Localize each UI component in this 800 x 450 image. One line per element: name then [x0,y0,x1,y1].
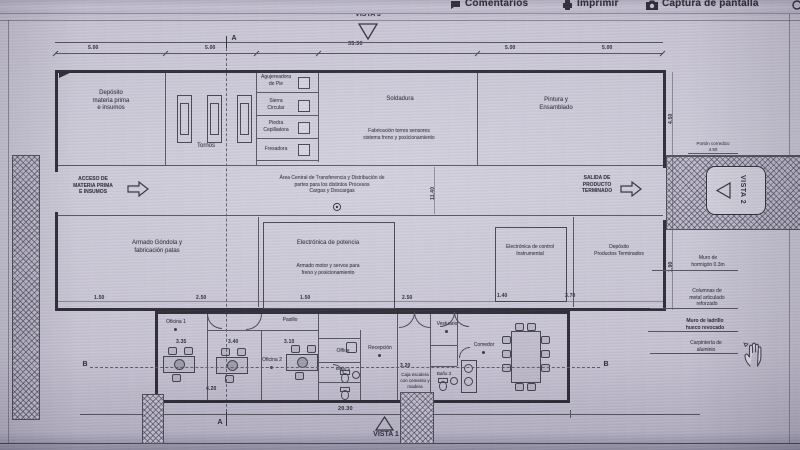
desk [163,356,195,373]
toilet [439,381,447,391]
machine-label: Piedra Cepilladora [257,120,295,133]
office-partition-line [318,382,360,383]
room-elec-control: Electrónica de control Instrumental [492,244,568,257]
dimension-line [672,72,673,310]
callout-porton: Portón corredizo 4.50 [686,141,740,153]
screenshot-button[interactable]: Captura de pantalla [646,0,759,13]
door-arc [459,347,470,358]
machine-symbol [298,122,310,134]
dim-seg: 5.00 [205,45,216,51]
equipment-symbol-icon [332,202,342,212]
section-a-mark [226,36,227,48]
lathe-machine [237,95,252,143]
chair [515,383,524,391]
chair [221,348,230,356]
dim-office: 3.40 [228,339,239,345]
office-corridor-line [207,330,318,331]
toilet [341,390,349,400]
office-partition [360,330,361,400]
room-vestuario: Vestuario [430,321,464,328]
room-armado-gondola: Armado Góndola y fabricación patas [117,240,197,255]
entrance-path-hatch [400,392,434,444]
door-arc [246,314,262,330]
machine-row-line [256,115,318,116]
sidewalk-hatch [142,394,164,444]
dim-low: 2.50 [402,295,413,301]
door-arc [399,312,415,328]
room-armado-motor: Armado motor y servos para freno y posic… [280,263,376,276]
vista3-triangle-icon [358,23,378,40]
room-recepcion: Recepción [362,345,398,352]
sink [352,371,360,379]
chair [502,350,511,358]
chair [184,347,193,355]
wall-top [55,70,666,73]
chair [527,323,536,331]
office-wall-bottom [155,400,570,403]
comments-button[interactable]: Comentarios [450,0,528,13]
wall-corridor-bottom [58,215,663,216]
machine-label: Agujereadora de Pie [257,74,295,87]
vista2-marker: VISTA 2 [706,166,766,215]
flow-salida: SALIDA DE PRODUCTO TERMINADO [572,175,622,195]
viewer-toolbar: Comentarios Imprimir Captura de pantalla [0,0,800,14]
dim-tick [660,51,666,57]
callout-carpinteria: Carpintería de aluminio [676,340,736,353]
comments-label: Comentarios [465,0,528,9]
vista1-triangle-icon [375,416,394,431]
print-button[interactable]: Imprimir [562,0,619,13]
callout-columnas: Columnas de metal articulado reforzado [676,288,738,308]
dim-office: 3.10 [284,339,295,345]
door-opening-access [55,172,58,212]
right-arrow-icon [127,181,149,197]
dim-right: 4.50 [668,113,674,124]
room-pasillo: Pasillo [272,317,308,324]
dim-tick [570,410,571,418]
dim-corridor-height: 11.40 [430,187,436,200]
room-deposito-mp: Depósito materia prima e insumos [76,90,146,113]
vista2-label: VISTA 2 [739,175,746,204]
lathe-machine [177,95,192,143]
print-label: Imprimir [577,0,619,9]
room-oficina1: Oficina 1 [158,319,194,326]
right-arrow-icon [620,181,642,197]
office-partition-line [318,362,360,363]
room-deposito-pt: Depósito Productos Terminados [580,244,658,257]
chair [172,374,181,382]
desk [286,354,318,371]
cropped-toolbar-icon[interactable] [792,0,800,13]
sink [450,377,458,385]
room-box-control [495,227,567,302]
room-caja-escalera: Caja escalera con cemento y madera [398,372,432,390]
light-symbol [378,354,381,357]
chair [502,336,511,344]
office-partition [261,330,262,400]
screenshot-label: Captura de pantalla [662,0,759,9]
machine-label: Fresadora [257,146,295,153]
wall-partition [477,73,478,165]
door-arc [414,312,430,328]
dim-bottom-total: 20.30 [338,406,353,412]
section-b-line [90,367,600,368]
toilet [341,373,349,383]
callout-leader [688,153,738,154]
wall-partition [258,217,259,307]
room-tornos: Tornos [186,143,226,151]
dim-low: 1.50 [94,295,105,301]
camera-icon [646,0,658,11]
north-flag-mark [59,71,74,78]
stove [464,377,473,386]
room-elec-potencia: Electrónica de potencia [288,240,368,248]
callout-ladrillo: Muro de ladrillo hueco revocado [674,318,736,331]
street-hatch-left [12,155,40,420]
machine-row-line [256,138,318,139]
kitchen-sink [464,364,473,373]
chair [295,372,304,380]
office-partition-line [430,345,457,346]
dim-office: 4.20 [206,386,217,392]
ground-line [80,414,700,415]
chair [515,323,524,331]
dim-low: 1.50 [300,295,311,301]
door-arc [207,314,222,329]
chair [502,364,511,372]
dim-seg: 5.00 [88,45,99,51]
chair [237,348,246,356]
dim-seg: 5.00 [505,45,516,51]
section-a-bottom-label: A [215,419,225,428]
vista2-triangle-icon [716,182,731,199]
callout-leader [650,308,738,309]
printer-icon [562,0,573,11]
chair [307,345,316,353]
screenshot-root: Comentarios Imprimir Captura de pantalla… [0,0,800,450]
machine-row-line [256,92,318,93]
wall-partition [318,73,319,162]
dim-office: 3.35 [176,339,187,345]
dimension-line [55,42,663,43]
sheet-border-line [8,20,9,443]
dim-corridor: 3.20 [400,363,411,369]
callout-muro-hormigon: Muro de hormigón 0.3m [678,255,738,268]
chair [291,345,300,353]
chair [541,336,550,344]
more-icon [792,0,800,11]
section-a-top-label: A [229,35,239,44]
section-b-left-label: B [80,361,90,370]
office-wall-right [567,311,570,403]
wall-partition [165,73,166,165]
dim-seg: 5.00 [602,45,613,51]
sink [346,342,357,353]
machine-symbol [298,77,310,89]
wall-corridor-top [58,165,663,166]
room-oficina2: Oficina 2 [254,357,290,364]
office-partition [318,314,319,400]
chair [527,383,536,391]
flow-acceso: ACCESO DE MATERIA PRIMA E INSUMOS [62,176,124,196]
callout-leader [648,331,738,332]
room-soldadura-sub: Fabricación torres sensores sistema fren… [350,128,448,141]
flow-central: Área Central de Transferencia y Distribu… [252,175,412,195]
callout-leader [650,353,738,354]
sheet-border-line [0,20,800,21]
room-soldadura: Soldadura [360,96,440,104]
dim-low: 1.40 [497,293,508,299]
section-b-right-label: B [601,361,611,370]
grab-hand-cursor [742,340,766,368]
machine-symbol [298,100,310,112]
callout-leader [652,270,738,271]
dim-low: 3.70 [565,293,576,299]
comment-icon [450,0,461,11]
floor-plan: VISTA 3 35.30 5.00 5.00 5.00 5.00 A A [0,0,800,450]
room-comedor: Comedor [466,342,502,349]
room-banio3: Baño 3 [432,371,456,377]
dimension-line [55,53,663,54]
machine-label: Sierra Circular [257,98,295,111]
office-partition-line [318,338,360,339]
chair [225,375,234,383]
chair [541,350,550,358]
lathe-machine [207,95,222,143]
dim-low: 2.50 [196,295,207,301]
light-symbol [174,328,177,331]
light-symbol [445,330,448,333]
machine-row-line [256,160,318,161]
dining-table [511,331,541,383]
machine-symbol [298,144,310,156]
chair [168,347,177,355]
chair [541,364,550,372]
room-pintura: Pintura y Ensamblado [516,97,596,112]
desk [216,357,248,374]
light-symbol [482,351,485,354]
